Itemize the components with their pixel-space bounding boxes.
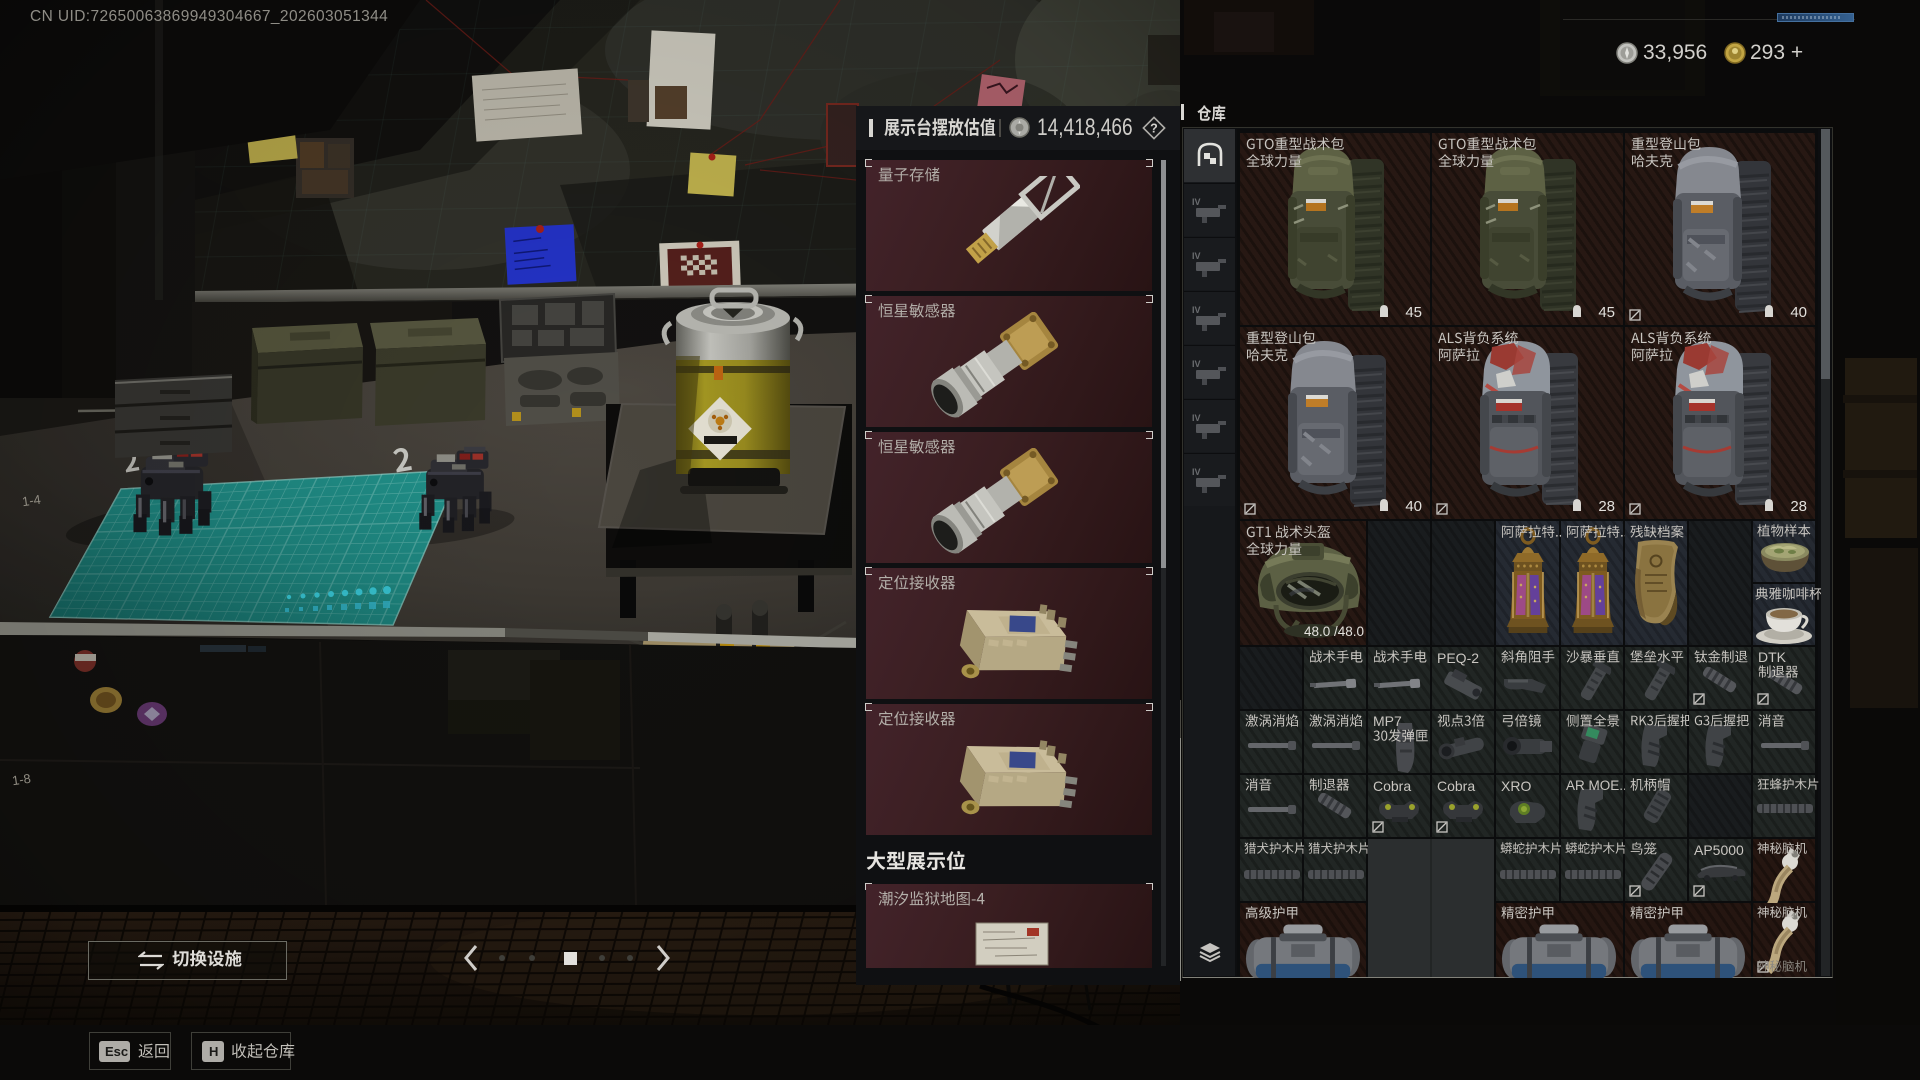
svg-text:IV: IV [1192, 467, 1201, 477]
svg-text:28: 28 [1598, 498, 1615, 515]
svg-text:?: ? [1150, 122, 1158, 136]
svg-text:IV: IV [1192, 251, 1201, 261]
svg-text:28: 28 [1790, 498, 1807, 515]
svg-text:45: 45 [1405, 304, 1422, 321]
svg-text:IV: IV [1192, 359, 1201, 369]
svg-text:IV: IV [1192, 305, 1201, 315]
svg-text:45: 45 [1598, 304, 1615, 321]
svg-text:40: 40 [1405, 498, 1422, 515]
svg-text:40: 40 [1790, 304, 1807, 321]
svg-text:IV: IV [1192, 197, 1201, 207]
svg-text:IV: IV [1192, 413, 1201, 423]
